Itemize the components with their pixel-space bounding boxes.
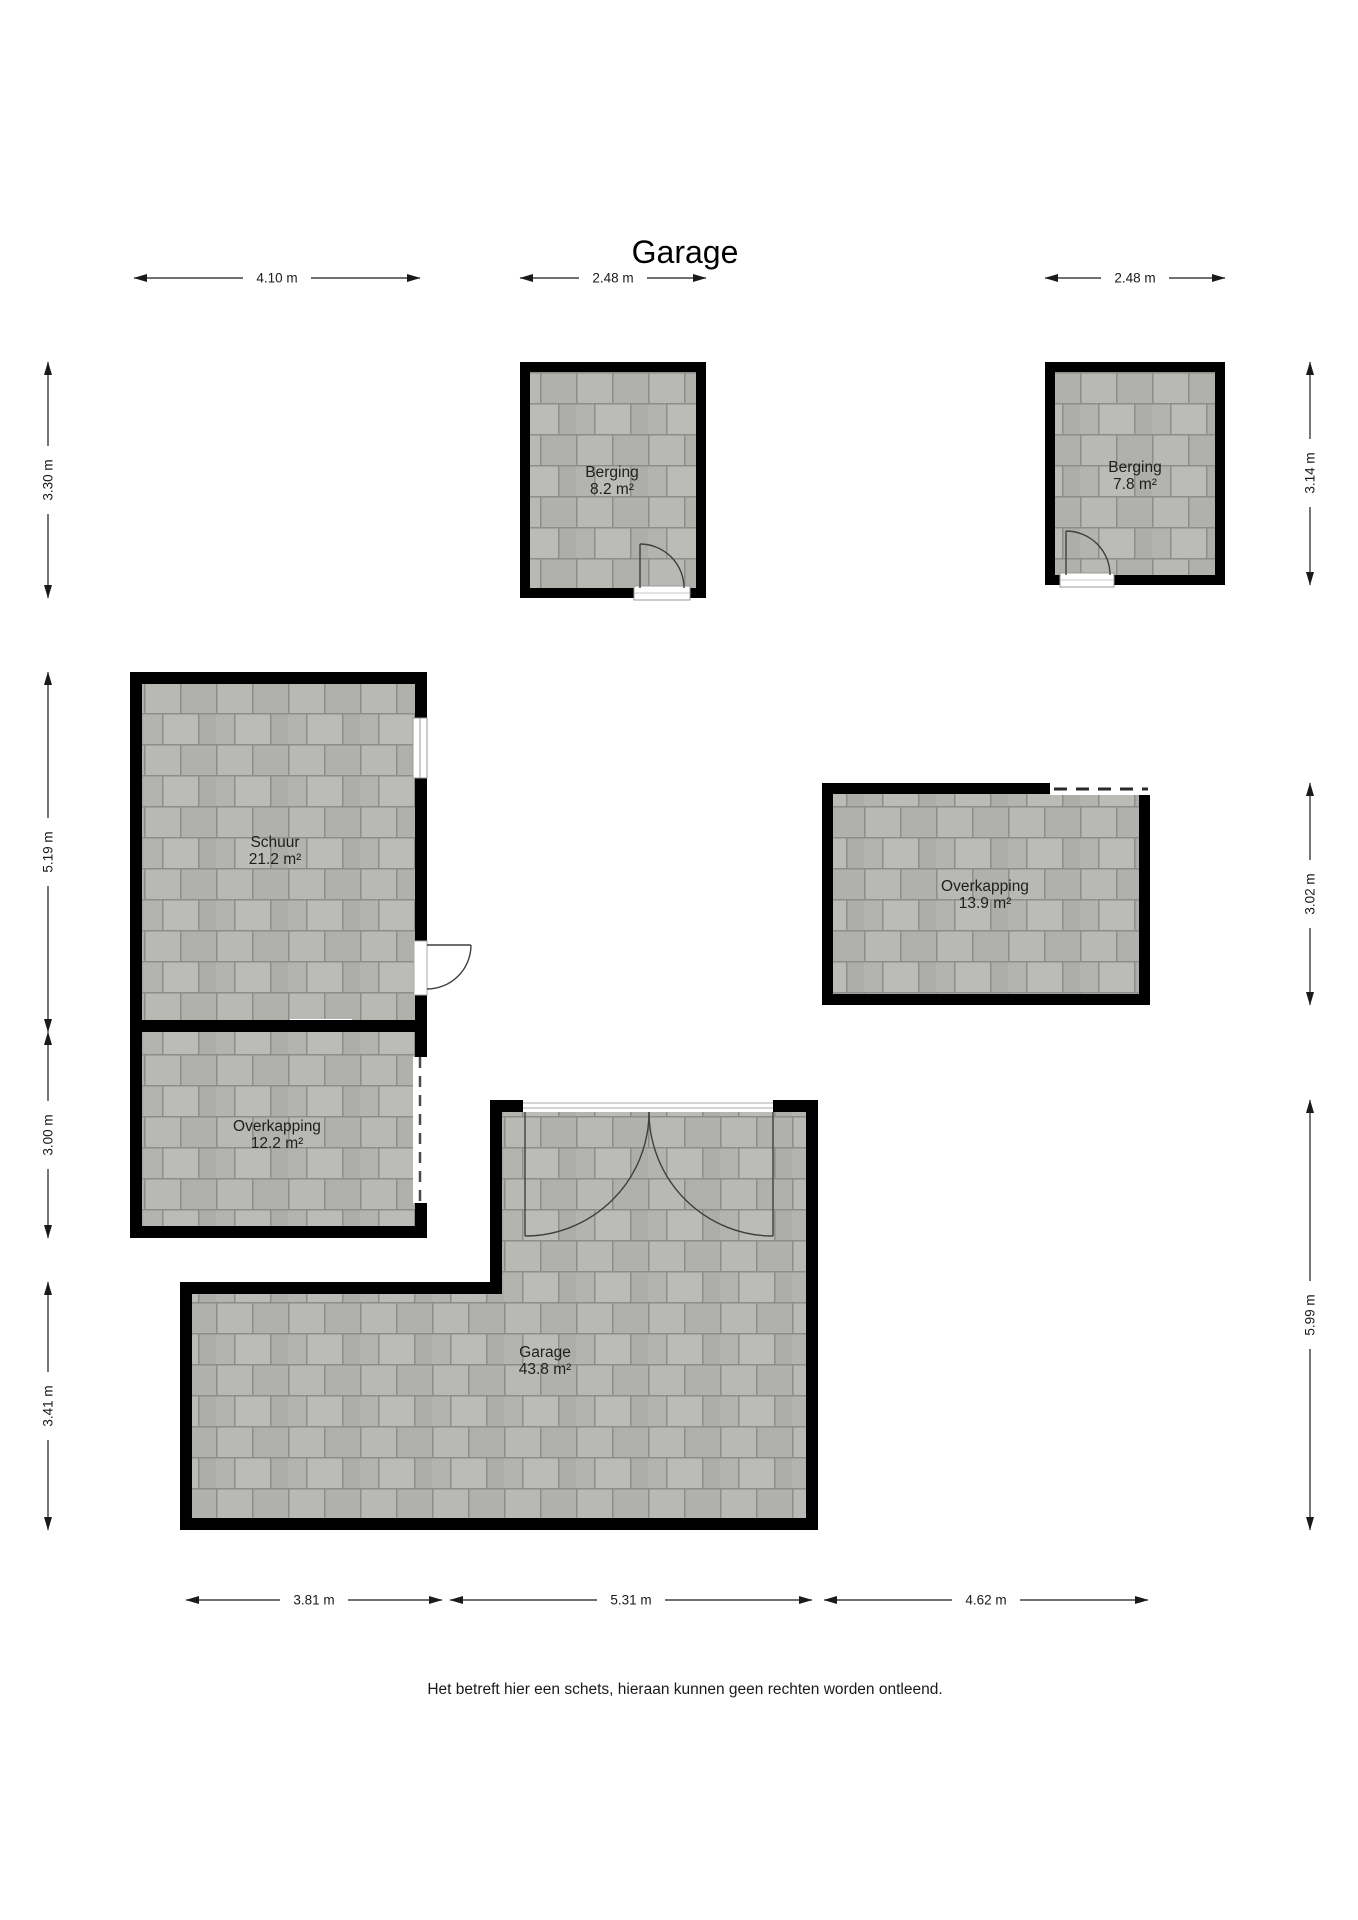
- window: [413, 718, 427, 778]
- dimension-label: 3.00 m: [41, 1114, 56, 1155]
- open-side-dashed: [413, 1057, 427, 1203]
- dim-left-1: 3.30 m: [41, 362, 56, 598]
- room-overkapping-12: Overkapping 12.2 m²: [130, 1020, 427, 1238]
- room-label-name: Garage: [519, 1344, 571, 1361]
- dimension-label: 4.10 m: [256, 271, 297, 286]
- room-label-area: 7.8 m²: [1113, 476, 1157, 493]
- room-label-name: Berging: [1108, 459, 1161, 476]
- page-title: Garage: [632, 234, 739, 270]
- dimension-label: 5.19 m: [41, 831, 56, 872]
- dimension-label: 3.30 m: [41, 459, 56, 500]
- dimension-label: 2.48 m: [592, 271, 633, 286]
- dim-left-4: 3.41 m: [41, 1282, 56, 1530]
- dimension-label: 3.14 m: [1303, 452, 1318, 493]
- room-overkapping-13: Overkapping 13.9 m²: [822, 781, 1150, 1005]
- dim-right-2: 3.02 m: [1303, 783, 1318, 1005]
- room-label-name: Berging: [585, 464, 638, 481]
- dimension-label: 4.62 m: [965, 1593, 1006, 1608]
- room-berging-1: Berging 8.2 m²: [520, 362, 706, 600]
- dim-top-3: 2.48 m: [1045, 271, 1225, 286]
- dimension-label: 5.31 m: [610, 1593, 651, 1608]
- dim-top-1: 4.10 m: [134, 271, 420, 286]
- room-label-area: 21.2 m²: [249, 851, 302, 868]
- dim-left-2: 5.19 m: [41, 672, 56, 1032]
- dim-left-3: 3.00 m: [41, 1032, 56, 1238]
- room-label-name: Schuur: [250, 834, 299, 851]
- room-label-name: Overkapping: [941, 878, 1029, 895]
- room-label-area: 43.8 m²: [519, 1361, 572, 1378]
- dim-right-1: 3.14 m: [1303, 362, 1318, 585]
- door-swing: [414, 941, 471, 995]
- dim-bottom-1: 3.81 m: [186, 1593, 442, 1608]
- room-berging-2: Berging 7.8 m²: [1045, 362, 1225, 587]
- room-label-area: 8.2 m²: [590, 481, 634, 498]
- floorplan-page: Garage Berging 8.2 m² Berging 7.8 m²: [0, 0, 1358, 1920]
- open-side-dashed: [1050, 781, 1150, 795]
- dimension-label: 3.41 m: [41, 1385, 56, 1426]
- floorplan-svg: Garage Berging 8.2 m² Berging 7.8 m²: [0, 0, 1358, 1920]
- dim-bottom-2: 5.31 m: [450, 1593, 812, 1608]
- footer-disclaimer: Het betreft hier een schets, hieraan kun…: [427, 1681, 942, 1698]
- dim-right-3: 5.99 m: [1303, 1100, 1318, 1530]
- dimension-label: 5.99 m: [1303, 1294, 1318, 1335]
- dimension-label: 2.48 m: [1114, 271, 1155, 286]
- dim-top-2: 2.48 m: [520, 271, 706, 286]
- dim-bottom-3: 4.62 m: [824, 1593, 1148, 1608]
- room-label-area: 13.9 m²: [959, 895, 1012, 912]
- room-label-area: 12.2 m²: [251, 1135, 304, 1152]
- room-label-name: Overkapping: [233, 1118, 321, 1135]
- dimension-label: 3.02 m: [1303, 873, 1318, 914]
- dimension-label: 3.81 m: [293, 1593, 334, 1608]
- room-schuur: Schuur 21.2 m²: [130, 672, 471, 1033]
